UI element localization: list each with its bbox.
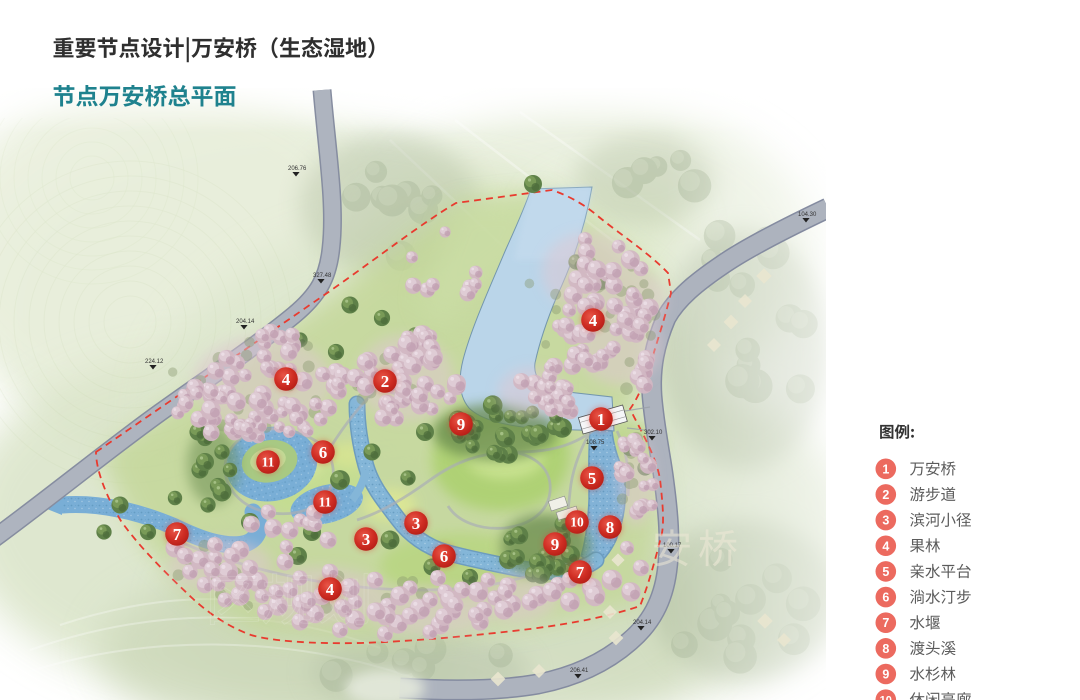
- svg-text:206.41: 206.41: [570, 668, 589, 674]
- svg-text:6: 6: [319, 443, 328, 462]
- svg-text:3: 3: [882, 514, 889, 528]
- svg-text:224.12: 224.12: [145, 359, 164, 365]
- svg-text:206.76: 206.76: [288, 166, 307, 172]
- svg-text:4: 4: [282, 370, 291, 389]
- svg-text:108.75: 108.75: [586, 440, 605, 446]
- svg-text:6: 6: [440, 547, 449, 566]
- svg-text:204.14: 204.14: [633, 620, 652, 626]
- svg-text:2: 2: [882, 488, 889, 502]
- svg-text:3: 3: [412, 514, 421, 533]
- svg-text:4: 4: [326, 580, 335, 599]
- svg-text:7: 7: [173, 525, 182, 544]
- svg-text:327.48: 327.48: [313, 273, 332, 279]
- svg-text:11: 11: [262, 455, 275, 470]
- svg-text:6: 6: [882, 591, 889, 605]
- svg-text:1: 1: [882, 462, 889, 476]
- svg-text:4: 4: [882, 539, 889, 553]
- svg-text:1: 1: [597, 410, 606, 429]
- svg-text:11: 11: [319, 495, 332, 510]
- svg-text:104.30: 104.30: [798, 212, 817, 218]
- svg-text:5: 5: [588, 469, 597, 488]
- svg-text:9: 9: [882, 668, 889, 682]
- svg-text:4: 4: [589, 311, 598, 330]
- svg-text:5: 5: [882, 565, 889, 579]
- svg-text:3: 3: [362, 530, 371, 549]
- svg-text:7: 7: [882, 616, 889, 630]
- svg-text:204.14: 204.14: [236, 319, 255, 325]
- svg-text:10: 10: [570, 515, 584, 530]
- svg-text:9: 9: [551, 535, 560, 554]
- svg-text:8: 8: [606, 518, 615, 537]
- svg-text:8: 8: [882, 642, 889, 656]
- svg-text:10: 10: [880, 695, 892, 700]
- svg-text:302.10: 302.10: [644, 430, 663, 436]
- svg-text:7: 7: [576, 563, 585, 582]
- svg-text:2: 2: [381, 372, 390, 391]
- svg-text:9: 9: [457, 415, 466, 434]
